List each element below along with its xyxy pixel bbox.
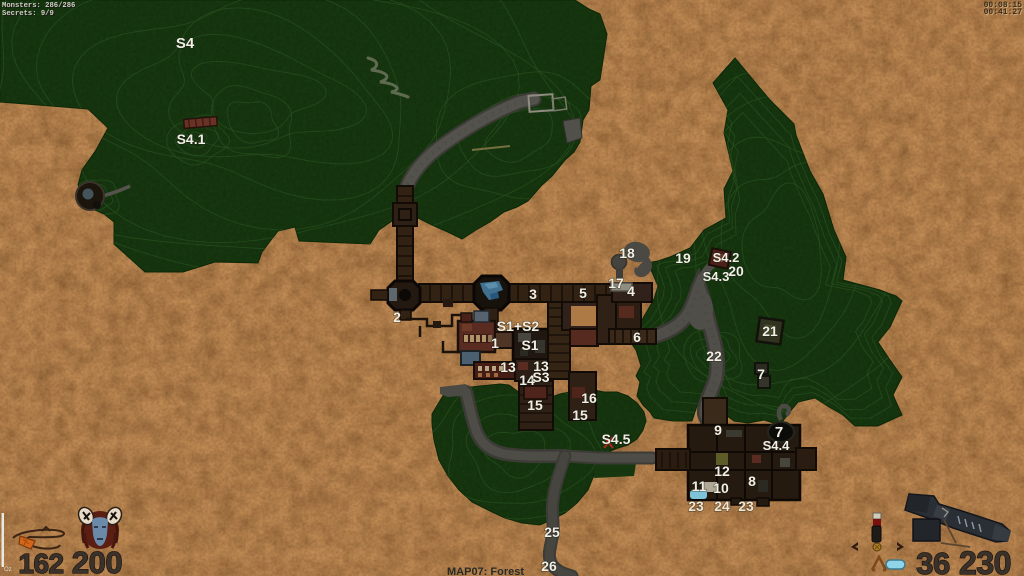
svg-text:15: 15 <box>527 397 543 413</box>
svg-text:20: 20 <box>728 263 744 279</box>
svg-text:7: 7 <box>757 366 765 382</box>
svg-text:11: 11 <box>692 478 707 494</box>
svg-text:Oz: Oz <box>4 567 12 573</box>
svg-text:13: 13 <box>500 359 516 375</box>
svg-text:S1+S2: S1+S2 <box>497 318 540 334</box>
svg-text:18: 18 <box>619 245 635 261</box>
svg-text:200: 200 <box>72 545 122 576</box>
svg-text:4: 4 <box>627 283 635 299</box>
svg-text:16: 16 <box>581 390 597 406</box>
svg-text:S4.5: S4.5 <box>602 431 631 447</box>
svg-text:21: 21 <box>762 323 778 339</box>
svg-text:9: 9 <box>714 422 722 438</box>
svg-text:15: 15 <box>572 407 588 423</box>
svg-text:25: 25 <box>544 524 560 540</box>
svg-text:S4.3: S4.3 <box>703 269 730 284</box>
svg-text:S3: S3 <box>532 369 549 385</box>
svg-text:23: 23 <box>738 498 754 514</box>
svg-text:S4.1: S4.1 <box>177 131 206 147</box>
svg-text:1: 1 <box>491 335 499 351</box>
svg-text:230: 230 <box>959 545 1011 576</box>
svg-text:12: 12 <box>714 463 730 479</box>
svg-text:10: 10 <box>713 480 729 496</box>
svg-text:23: 23 <box>688 498 704 514</box>
svg-text:36: 36 <box>916 546 950 576</box>
svg-text:162: 162 <box>18 548 63 576</box>
svg-text:8: 8 <box>748 473 756 489</box>
svg-text:6: 6 <box>633 329 641 345</box>
svg-text:Monsters: 286/286: Monsters: 286/286 <box>2 2 75 10</box>
svg-text:2: 2 <box>393 309 401 325</box>
svg-text:Secrets: 9/9: Secrets: 9/9 <box>2 10 54 18</box>
svg-text:26: 26 <box>541 558 557 574</box>
svg-text:5: 5 <box>579 285 587 301</box>
svg-text:S4: S4 <box>176 35 195 52</box>
svg-text:3: 3 <box>529 286 537 302</box>
svg-text:22: 22 <box>706 348 722 364</box>
svg-text:S4.4: S4.4 <box>763 438 791 453</box>
svg-text:19: 19 <box>675 250 691 266</box>
svg-text:S1: S1 <box>521 337 538 353</box>
svg-text:24: 24 <box>714 498 730 514</box>
svg-text:MAP07: Forest: MAP07: Forest <box>447 566 524 576</box>
svg-text:17: 17 <box>608 275 624 291</box>
svg-text:00:41:27: 00:41:27 <box>984 8 1023 17</box>
